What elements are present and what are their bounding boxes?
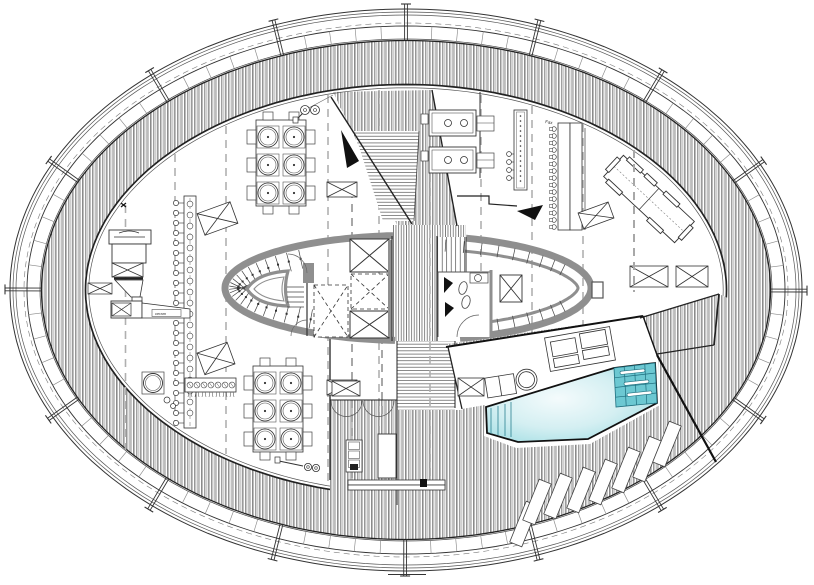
svg-text:ceram: ceram — [155, 311, 167, 316]
